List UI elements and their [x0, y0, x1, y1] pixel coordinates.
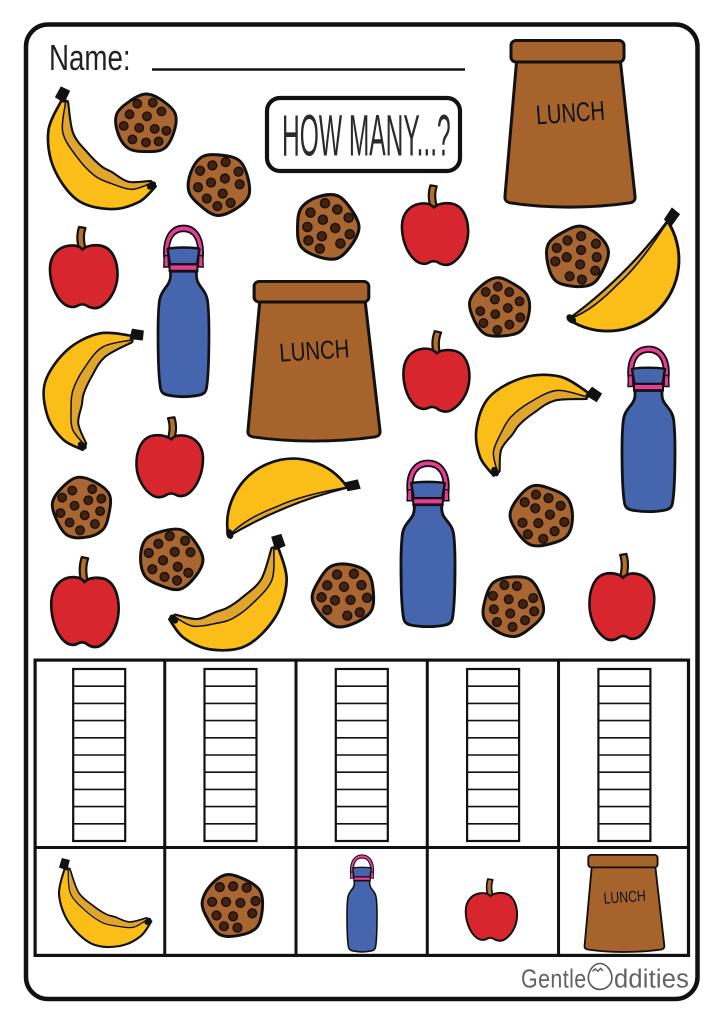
- svg-text:ddities: ddities: [614, 966, 689, 994]
- svg-text:Name:: Name:: [49, 38, 131, 78]
- svg-text:Gentle: Gentle: [521, 965, 587, 993]
- svg-text:HOW MANY...?: HOW MANY...?: [282, 102, 451, 169]
